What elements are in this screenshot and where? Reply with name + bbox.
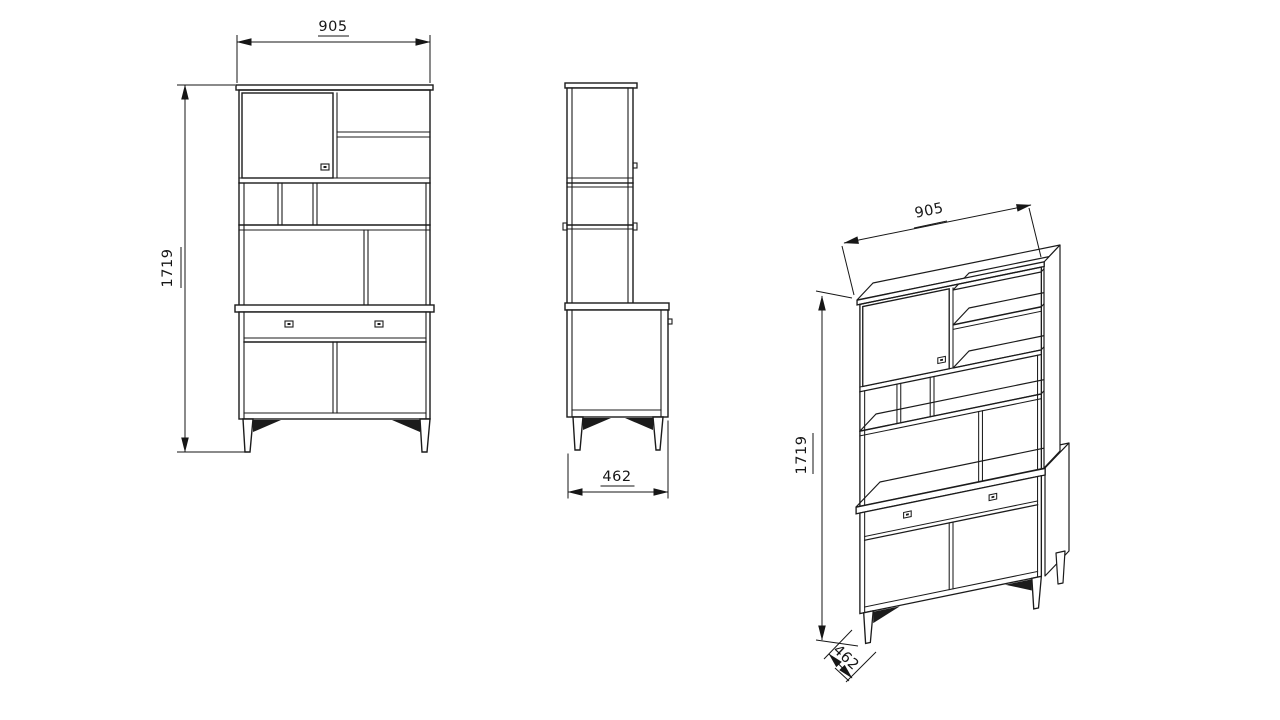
front-width-label: 905 xyxy=(318,19,347,35)
side-upper-cabinet xyxy=(567,88,633,183)
side-legs xyxy=(573,417,663,450)
drawing-sheet: 905 1719 xyxy=(0,0,1280,720)
iso-width-label: 905 xyxy=(913,200,945,221)
front-height-dimension xyxy=(177,85,247,452)
iso-right-panel xyxy=(1044,245,1060,468)
side-top-slab xyxy=(565,83,637,88)
front-view: 905 1719 xyxy=(160,19,434,452)
front-height-label: 1719 xyxy=(160,249,176,288)
technical-drawing-canvas: 905 1719 xyxy=(0,0,1280,720)
iso-back-leg xyxy=(1056,551,1065,584)
iso-height-label: 1719 xyxy=(794,436,810,475)
iso-height-dimension xyxy=(813,291,858,646)
side-view: 462 xyxy=(563,83,672,498)
side-depth-label: 462 xyxy=(602,469,631,485)
iso-depth-label: 462 xyxy=(830,642,862,674)
side-sideboard xyxy=(567,310,668,417)
isometric-view: 905 1719 462 xyxy=(794,200,1069,682)
front-width-dimension xyxy=(237,35,430,83)
side-open-shelves xyxy=(563,183,637,303)
side-worktop xyxy=(565,303,669,310)
side-depth-dimension xyxy=(568,421,668,498)
